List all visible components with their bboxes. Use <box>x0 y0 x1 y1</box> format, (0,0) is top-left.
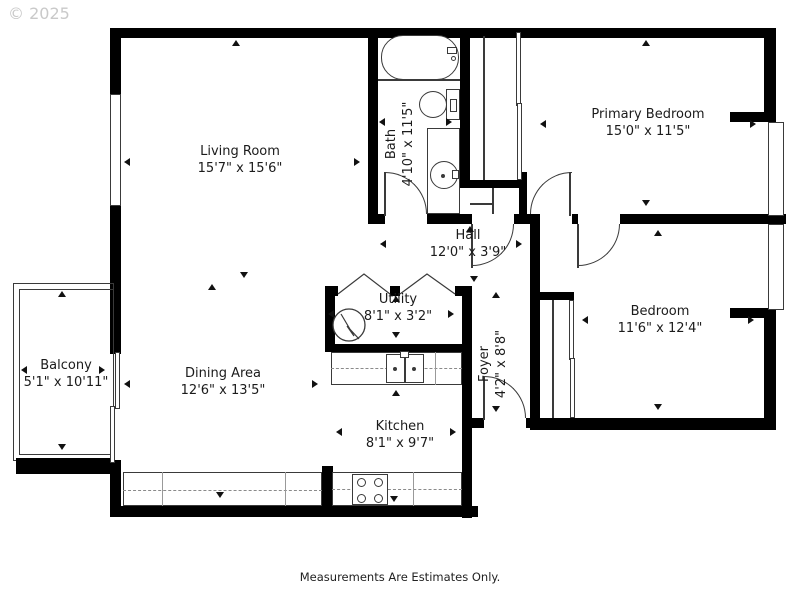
wall-utility-bottom <box>325 344 472 352</box>
wall-left-upper <box>110 28 121 96</box>
vanity-faucet <box>452 170 459 179</box>
room-name: Bath <box>384 102 401 187</box>
toilet-flush <box>450 99 457 112</box>
wall-right-upper <box>764 28 776 122</box>
wall-hall-band-b <box>427 214 472 224</box>
dimension-arrow <box>582 316 588 324</box>
wall-bedroom-bottom <box>530 418 776 430</box>
room-name: Kitchen <box>366 419 434 436</box>
dimension-arrow <box>216 492 224 498</box>
dimension-arrow <box>540 120 546 128</box>
living-window <box>110 94 121 206</box>
room-label-balcony: Balcony 5'1" x 10'11" <box>24 358 109 392</box>
dimension-arrow <box>642 200 650 206</box>
room-name: Primary Bedroom <box>591 107 704 124</box>
wall-bath-west <box>368 28 378 224</box>
primary-closet-slider <box>516 32 521 106</box>
dimension-arrow <box>124 158 130 166</box>
linen-closet-shelf <box>470 203 492 205</box>
dimension-arrow <box>392 296 400 302</box>
room-dims: 5'1" x 10'11" <box>24 375 109 392</box>
dimension-arrow <box>492 292 500 298</box>
wall-utility-west <box>325 286 335 350</box>
balcony-slider-panel <box>115 352 120 409</box>
vanity-drain <box>441 174 445 178</box>
dimension-arrow <box>470 276 478 282</box>
room-dims: 11'6" x 12'4" <box>618 321 703 338</box>
room-dims: 12'6" x 13'5" <box>181 383 266 400</box>
wall-closet-bottom <box>460 180 527 188</box>
bedroom-window <box>768 224 784 310</box>
upper-cabinet-line <box>123 490 322 491</box>
dimension-arrow <box>750 120 756 128</box>
dimension-arrow <box>58 291 66 297</box>
dimension-arrow <box>379 118 385 126</box>
dimension-arrow <box>99 366 105 374</box>
tub-faucet <box>447 47 457 54</box>
wall-bedroom-closet-top <box>540 292 574 300</box>
toilet-bowl <box>419 91 447 118</box>
copyright-watermark: © 2025 <box>8 4 70 23</box>
dimension-arrow <box>312 380 318 388</box>
linen-closet-divider <box>492 188 494 214</box>
balcony-slider-panel <box>110 406 115 463</box>
dimension-arrow <box>240 272 248 278</box>
room-name: Foyer <box>477 330 494 398</box>
wall-right-lower <box>764 308 776 430</box>
room-name: Balcony <box>24 358 109 375</box>
dimension-arrow <box>392 390 400 396</box>
dimension-arrow <box>466 226 474 232</box>
dimension-arrow <box>654 404 662 410</box>
room-dims: 8'1" x 3'2" <box>364 309 432 326</box>
room-label-kitchen: Kitchen 8'1" x 9'7" <box>366 419 434 453</box>
dimension-arrow <box>232 40 240 46</box>
room-label-hall: Hall 12'0" x 3'9" <box>430 228 506 262</box>
primary-bedroom-window <box>768 122 784 216</box>
dimension-arrow <box>392 332 400 338</box>
primary-door-arc <box>530 172 572 214</box>
dimension-arrow <box>328 310 334 318</box>
counter-seam <box>285 472 286 506</box>
dining-counter <box>123 472 322 506</box>
primary-closet-rod <box>483 36 485 180</box>
room-label-living-room: Living Room 15'7" x 15'6" <box>198 144 283 178</box>
dimension-arrow <box>354 158 360 166</box>
room-label-primary-bedroom: Primary Bedroom 15'0" x 11'5" <box>591 107 704 141</box>
room-label-foyer: Foyer 4'2" x 8'8" <box>477 330 511 398</box>
dimension-arrow <box>336 428 342 436</box>
sink-drain <box>393 367 397 371</box>
room-label-dining-area: Dining Area 12'6" x 13'5" <box>181 366 266 400</box>
dimension-arrow <box>446 118 452 126</box>
stove-burner <box>357 478 366 487</box>
floor-plan: © 2025 <box>0 0 800 600</box>
wall-bath-east <box>460 28 470 188</box>
balcony-bottom-wall <box>16 458 113 474</box>
stove-burner <box>357 494 366 503</box>
dimension-arrow <box>654 230 662 236</box>
dimension-arrow <box>516 240 522 248</box>
dimension-arrow <box>58 444 66 450</box>
bathtub <box>381 35 459 80</box>
tub-enclosure-line <box>378 79 460 81</box>
room-name: Living Room <box>198 144 283 161</box>
primary-closet-slider <box>517 103 522 180</box>
dimension-arrow <box>748 316 754 324</box>
wall-foyer-east <box>530 214 540 426</box>
dimension-arrow <box>390 496 398 502</box>
counter-seam <box>435 352 436 385</box>
dimension-arrow <box>124 380 130 388</box>
dimension-arrow <box>448 310 454 318</box>
room-label-bath: Bath 4'10" x 11'5" <box>384 102 418 187</box>
counter-seam <box>162 472 163 506</box>
dimension-arrow <box>380 240 386 248</box>
sink-drain <box>412 367 416 371</box>
disclaimer-text: Measurements Are Estimates Only. <box>300 570 500 584</box>
dimension-arrow <box>208 284 216 290</box>
dimension-arrow <box>21 366 27 374</box>
room-dims: 15'0" x 11'5" <box>591 124 704 141</box>
bedroom-closet-rod <box>552 300 554 418</box>
room-dims: 8'1" x 9'7" <box>366 436 434 453</box>
room-dims: 4'2" x 8'8" <box>494 330 511 398</box>
room-name: Bedroom <box>618 304 703 321</box>
stove-burner <box>374 478 383 487</box>
wall-bottom <box>110 506 478 517</box>
room-label-bedroom: Bedroom 11'6" x 12'4" <box>618 304 703 338</box>
wall-mid-east <box>462 286 472 518</box>
room-dims: 12'0" x 3'9" <box>430 245 506 262</box>
room-name: Dining Area <box>181 366 266 383</box>
wall-hall-band-e <box>620 214 786 224</box>
dimension-arrow <box>450 428 456 436</box>
wall-hall-band-d <box>572 214 578 224</box>
wall-hall-band-a <box>368 214 385 224</box>
bedroom-closet-slider <box>569 300 574 360</box>
tub-knob <box>451 56 456 61</box>
bedroom-door-arc <box>578 224 620 266</box>
stove-burner <box>374 494 383 503</box>
dimension-arrow <box>642 40 650 46</box>
dimension-arrow <box>492 406 500 412</box>
water-heater <box>333 309 365 341</box>
bedroom-closet-slider <box>570 358 575 418</box>
wall-hall-band-c <box>514 214 530 224</box>
room-dims: 4'10" x 11'5" <box>401 102 418 187</box>
counter-seam <box>413 472 414 506</box>
kitchen-sink-faucet <box>400 351 409 358</box>
room-dims: 15'7" x 15'6" <box>198 161 283 178</box>
